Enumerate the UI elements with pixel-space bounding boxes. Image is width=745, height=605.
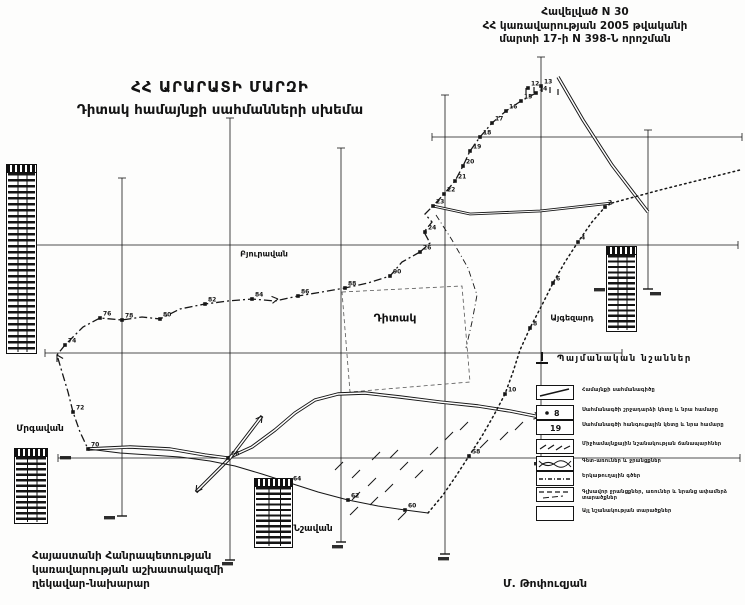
svg-text:82: 82 (208, 297, 216, 304)
settlement-label-Նշավան: Նշավան (293, 524, 332, 534)
legend-item-label: Գլխավոր ջրանցքներ, առուներ և նրանց ափամե… (582, 487, 732, 501)
svg-text:14: 14 (539, 86, 547, 93)
coordinate-table-rows (16, 457, 46, 522)
svg-text:74: 74 (68, 338, 76, 345)
svg-text:26: 26 (423, 245, 431, 252)
svg-text:62: 62 (351, 493, 359, 500)
legend-header: Պայմանական նշաններ (536, 354, 742, 364)
railway-symbol-icon (536, 471, 574, 486)
svg-text:16: 16 (509, 104, 517, 111)
svg-text:18: 18 (483, 130, 491, 137)
direction-arrows (57, 296, 540, 492)
svg-text:22: 22 (447, 187, 455, 194)
svg-text:64: 64 (293, 476, 301, 483)
issuer-line: Հայաստանի Հանրապետության (32, 549, 224, 563)
svg-text:15: 15 (524, 94, 532, 101)
node-point-symbol-icon: 19 (536, 420, 574, 435)
coordinate-table-rows (256, 487, 291, 546)
svg-text:13: 13 (544, 79, 552, 86)
canal-lines (436, 215, 477, 348)
coordinate-table (6, 164, 37, 354)
legend-item: Երկաթուղային գծեր (536, 471, 732, 486)
boundary-line-symbol-icon (536, 385, 574, 400)
svg-text:24: 24 (428, 225, 436, 232)
svg-text:80: 80 (163, 312, 171, 319)
appendix-line: մարտի 17-ի N 398-Ն որոշման (430, 33, 740, 47)
settlement-label-Բյուրավան: Բյուրավան (240, 250, 288, 259)
legend-item-label: Համայնքի սահմանագիծը (582, 385, 732, 394)
legend-item-label: Երկաթուղային գծեր (582, 471, 732, 480)
svg-text:78: 78 (125, 313, 133, 320)
svg-text:84: 84 (255, 292, 263, 299)
svg-text:60: 60 (408, 503, 416, 510)
coordinate-table-header (15, 449, 47, 457)
svg-text:2: 2 (608, 200, 612, 207)
coordinate-table-header (7, 165, 36, 173)
coordinate-table-header (607, 247, 636, 255)
svg-text:19: 19 (473, 144, 481, 151)
river-hatches (335, 422, 523, 520)
svg-text:90: 90 (393, 269, 401, 276)
svg-text:23: 23 (436, 199, 444, 206)
coordinate-table (606, 246, 637, 332)
legend-item: Համայնքի սահմանագիծը (536, 385, 732, 400)
svg-text:66: 66 (231, 451, 239, 458)
settlement-label-Մրգավան: Մրգավան (16, 424, 64, 434)
legend-item-label: Սահմանագծի շրջադարձի կետը և նրա համարը (582, 405, 732, 414)
svg-text:21: 21 (458, 174, 466, 181)
other-lands-symbol-icon (536, 506, 574, 521)
title-region: ՀՀ ԱՐԱՐԱՏԻ ՄԱՐԶԻ (55, 78, 385, 96)
settlement-label-Այգեզարդ: Այգեզարդ (550, 314, 593, 323)
svg-text:4: 4 (581, 235, 585, 242)
page-title: ՀՀ ԱՐԱՐԱՏԻ ՄԱՐԶԻ Դիտակ համայնքի սահմաննե… (55, 78, 385, 118)
scale-mark-icon (536, 354, 548, 364)
legend: Պայմանական նշաններ Համայնքի սահմանագիծը … (536, 352, 742, 524)
coordinate-table (14, 448, 48, 524)
svg-text:8: 8 (533, 321, 537, 328)
legend-item-label: Միջհամայնքային նշանակության ճանապարհներ (582, 439, 732, 448)
legend-item: Գլխավոր ջրանցքներ, առուներ և նրանց ափամե… (536, 487, 732, 502)
signature: Մ. Թոփուզյան (503, 577, 587, 590)
legend-item-label: Գետ-առուներ և ջրանցքներ (582, 456, 732, 465)
coordinate-table (254, 478, 293, 548)
svg-text:20: 20 (466, 159, 474, 166)
rivers-symbol-icon (536, 456, 574, 471)
legend-item-label: Սահմանագծի հանգուցային կետը և նրա համարը (582, 420, 732, 429)
turn-point-symbol-icon: 8 (536, 405, 574, 420)
title-subject: Դիտակ համայնքի սահմանների սխեմա (55, 102, 385, 118)
village-area-outline (342, 286, 470, 392)
legend-title: Պայմանական նշաններ (557, 354, 692, 364)
svg-text:8: 8 (554, 409, 560, 418)
appendix-note: Հավելված N 30 ՀՀ կառավարության 2005 թվակ… (430, 6, 740, 47)
coordinate-table-header (255, 479, 292, 487)
svg-text:72: 72 (76, 405, 84, 412)
svg-text:70: 70 (91, 442, 99, 449)
svg-text:19: 19 (550, 424, 562, 433)
coordinate-table-rows (608, 255, 635, 330)
legend-item: 19 Սահմանագծի հանգուցային կետը և նրա համ… (536, 420, 732, 435)
appendix-line: ՀՀ կառավարության 2005 թվականի (430, 20, 740, 34)
issuer-block: Հայաստանի Հանրապետության կառավարության ա… (32, 549, 224, 591)
main-canal-symbol-icon (536, 487, 574, 502)
legend-item: Միջհամայնքային նշանակության ճանապարհներ (536, 439, 732, 454)
issuer-line: կառավարության աշխատակազմի (32, 563, 224, 577)
map-sheet: 1213141516171819202122232426908886848280… (0, 0, 745, 605)
svg-text:17: 17 (495, 116, 503, 123)
svg-text:88: 88 (348, 281, 356, 288)
legend-item: 8 Սահմանագծի շրջադարձի կետը և նրա համարը (536, 405, 732, 420)
svg-text:10: 10 (508, 387, 516, 394)
legend-item-label: Այլ նշանակության տարածքներ (582, 506, 732, 515)
settlement-label-Դիտակ: Դիտակ (374, 312, 417, 325)
svg-text:58: 58 (472, 449, 480, 456)
legend-item: Այլ նշանակության տարածքներ (536, 506, 732, 521)
issuer-line: ղեկավար-նախարար (32, 577, 224, 591)
legend-item: Գետ-առուներ և ջրանցքներ (536, 456, 732, 471)
appendix-line: Հավելված N 30 (430, 6, 740, 20)
svg-text:6: 6 (556, 276, 560, 283)
intercommunity-road-symbol-icon (536, 439, 574, 454)
svg-text:76: 76 (103, 311, 111, 318)
svg-text:86: 86 (301, 289, 309, 296)
coordinate-table-rows (8, 173, 35, 352)
